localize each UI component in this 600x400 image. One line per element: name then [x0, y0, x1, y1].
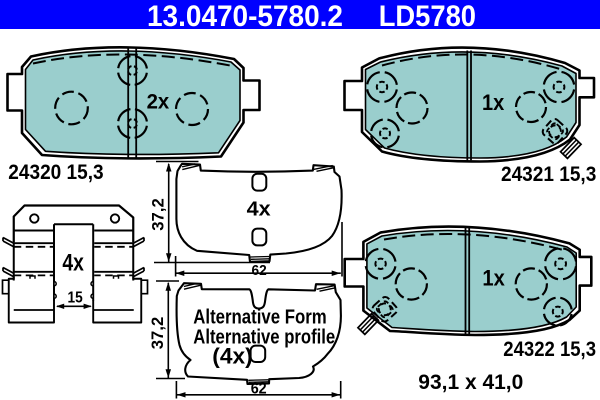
svg-text:37,2: 37,2 [149, 317, 167, 350]
svg-text:Alternative Form: Alternative Form [193, 307, 326, 329]
svg-text:37,2: 37,2 [150, 198, 168, 231]
svg-text:4x: 4x [247, 198, 271, 220]
svg-text:LD5780: LD5780 [379, 0, 476, 33]
svg-text:1x: 1x [482, 265, 505, 290]
svg-text:93,1 x 41,0: 93,1 x 41,0 [418, 370, 523, 394]
svg-text:24322 15,3: 24322 15,3 [503, 337, 596, 361]
svg-text:2x: 2x [147, 90, 170, 114]
svg-text:(4x): (4x) [212, 344, 252, 369]
svg-text:15: 15 [68, 289, 83, 306]
svg-text:4x: 4x [62, 249, 84, 276]
svg-text:1x: 1x [482, 90, 505, 115]
svg-text:62: 62 [252, 262, 267, 279]
svg-text:13.0470-5780.2: 13.0470-5780.2 [147, 0, 343, 33]
svg-text:62: 62 [251, 380, 267, 397]
svg-text:24320 15,3: 24320 15,3 [8, 160, 103, 184]
svg-text:24321 15,3: 24321 15,3 [501, 162, 596, 186]
